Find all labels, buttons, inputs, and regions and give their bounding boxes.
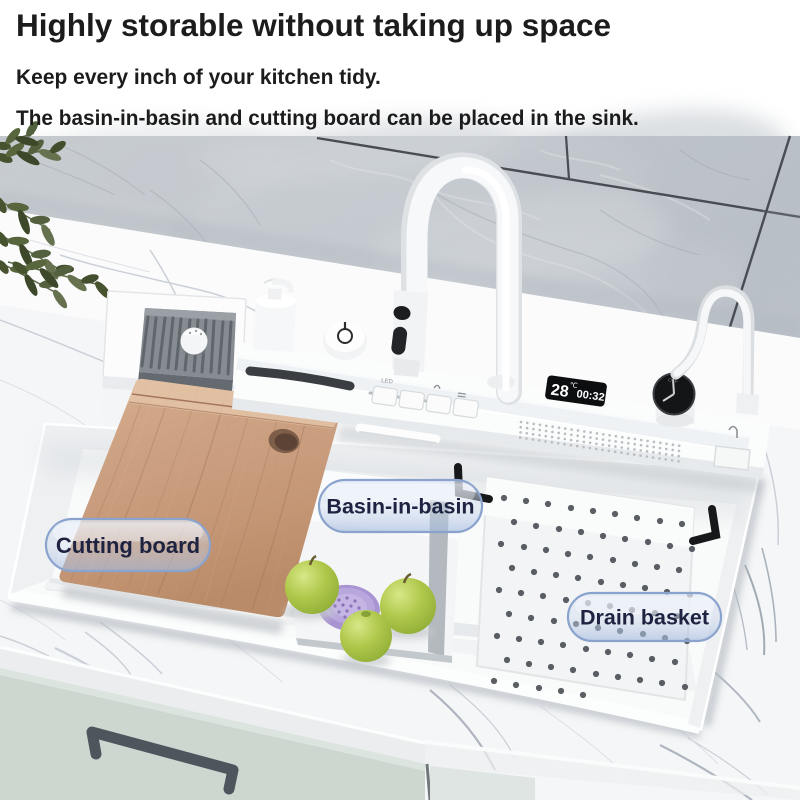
svg-text:Cutting board: Cutting board	[56, 533, 200, 558]
svg-text:Drain basket: Drain basket	[580, 606, 709, 630]
svg-text:28: 28	[550, 382, 570, 401]
svg-text:Basin-in-basin: Basin-in-basin	[326, 495, 474, 519]
